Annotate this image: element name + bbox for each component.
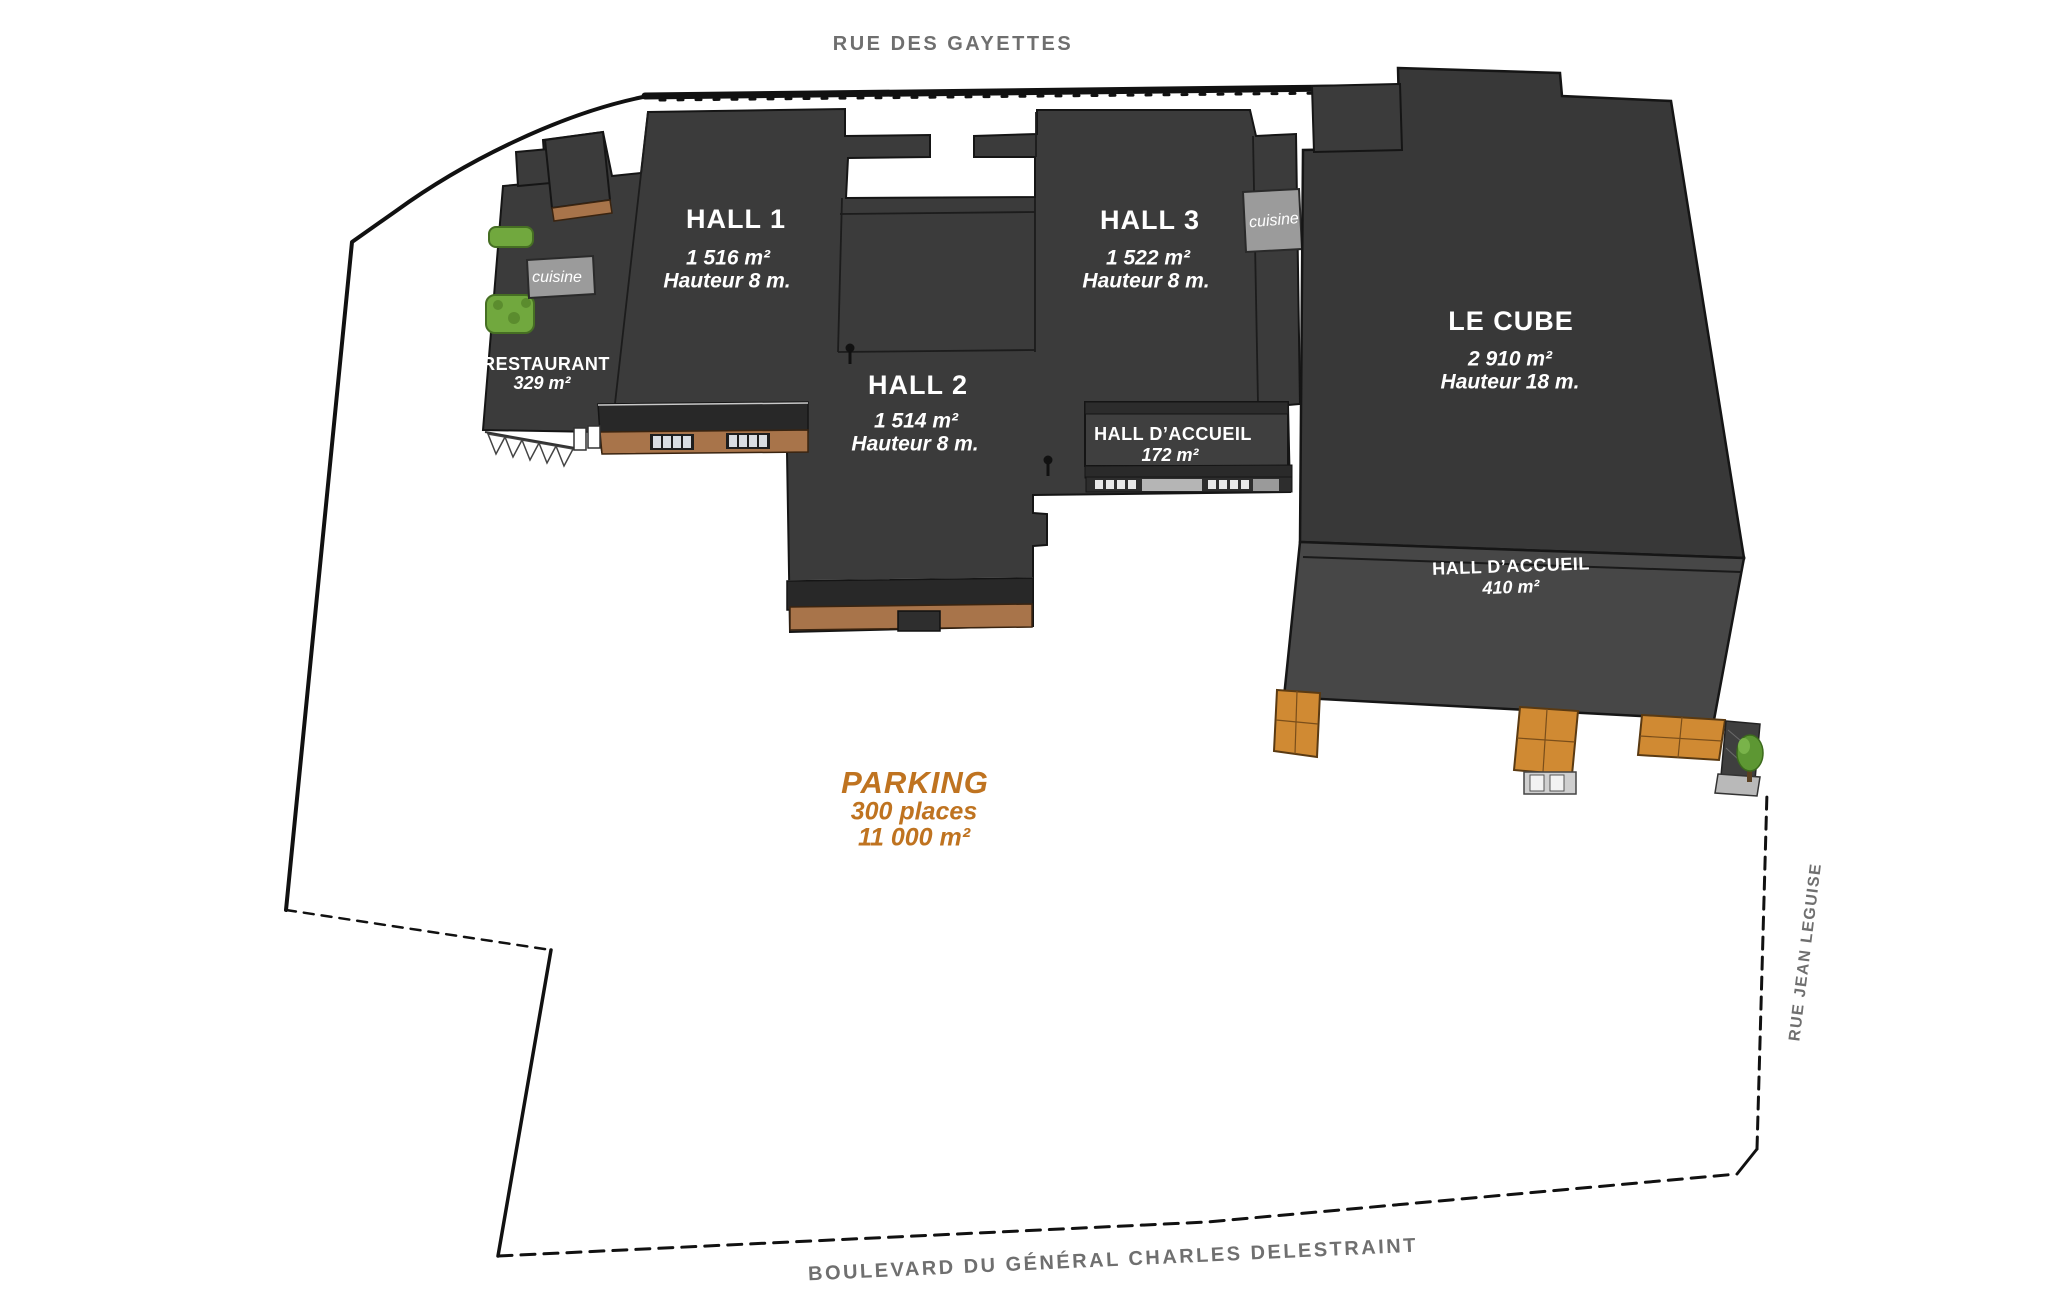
hall1-brown-base: [600, 430, 808, 454]
hall3-title: HALL 3: [1100, 206, 1200, 236]
boundary-bottom-dashed: [498, 1174, 1737, 1256]
accueil410-area: 410 m²: [1482, 577, 1540, 599]
restaurant-area: 329 m²: [513, 374, 570, 394]
boundary-corner-se: [1737, 1149, 1757, 1174]
boundary-left-dashed: [286, 910, 551, 950]
boundary-left-lower: [498, 950, 551, 1256]
cube-entrance-doors: [1524, 772, 1576, 794]
cuisine-west-label: cuisine: [532, 269, 582, 287]
annex-block-b-roof: [545, 132, 610, 208]
bush-north: [489, 227, 533, 247]
accueil172-front-face: [1085, 465, 1292, 478]
accueil172-title: HALL D’ACCUEIL: [1094, 425, 1252, 445]
hall2-height: Hauteur 8 m.: [851, 432, 978, 455]
le-cube-step-block: [1312, 84, 1402, 152]
site-plan: RUE DES GAYETTES HALL 1 1 516 m² Hauteur…: [0, 0, 2048, 1297]
parking-area: 11 000 m²: [858, 824, 970, 852]
hall1-front-face: [598, 402, 808, 434]
accueil172-area: 172 m²: [1141, 446, 1198, 466]
hall2-area: 1 514 m²: [874, 409, 958, 432]
hall1-title: HALL 1: [686, 205, 786, 235]
hall1-area: 1 516 m²: [686, 246, 770, 269]
hall3-area: 1 522 m²: [1106, 246, 1190, 269]
le-cube-area: 2 910 m²: [1468, 347, 1552, 370]
street-top-label: RUE DES GAYETTES: [833, 33, 1073, 55]
site-plan-drawing: [0, 0, 2048, 1297]
hall2-title: HALL 2: [868, 371, 968, 401]
hall2-door-step: [898, 611, 940, 631]
le-cube-height: Hauteur 18 m.: [1441, 370, 1580, 393]
hall3-height: Hauteur 8 m.: [1082, 269, 1209, 292]
accueil172-top-band: [1085, 402, 1288, 414]
planter: [1715, 774, 1760, 796]
restaurant-awning: [488, 434, 573, 466]
parking-places: 300 places: [851, 798, 978, 826]
restaurant-title: RESTAURANT: [482, 355, 610, 375]
le-cube-complex: [1274, 68, 1763, 796]
le-cube-title: LE CUBE: [1448, 307, 1574, 337]
parking-title: PARKING: [841, 766, 989, 800]
hall1-height: Hauteur 8 m.: [663, 269, 790, 292]
boundary-right-dashed: [1757, 792, 1767, 1149]
